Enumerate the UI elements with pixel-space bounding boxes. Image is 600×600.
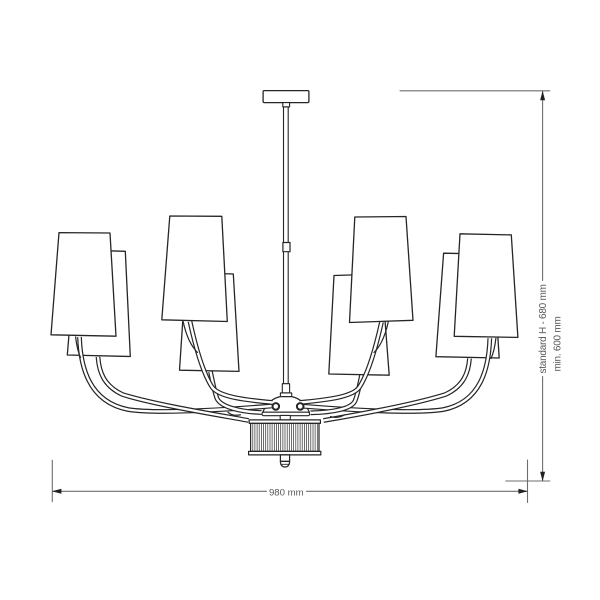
svg-text:980 mm: 980 mm xyxy=(269,487,304,498)
svg-text:min. 600 mm: min. 600 mm xyxy=(552,316,563,371)
svg-text:standard H - 680 mm: standard H - 680 mm xyxy=(538,284,549,373)
